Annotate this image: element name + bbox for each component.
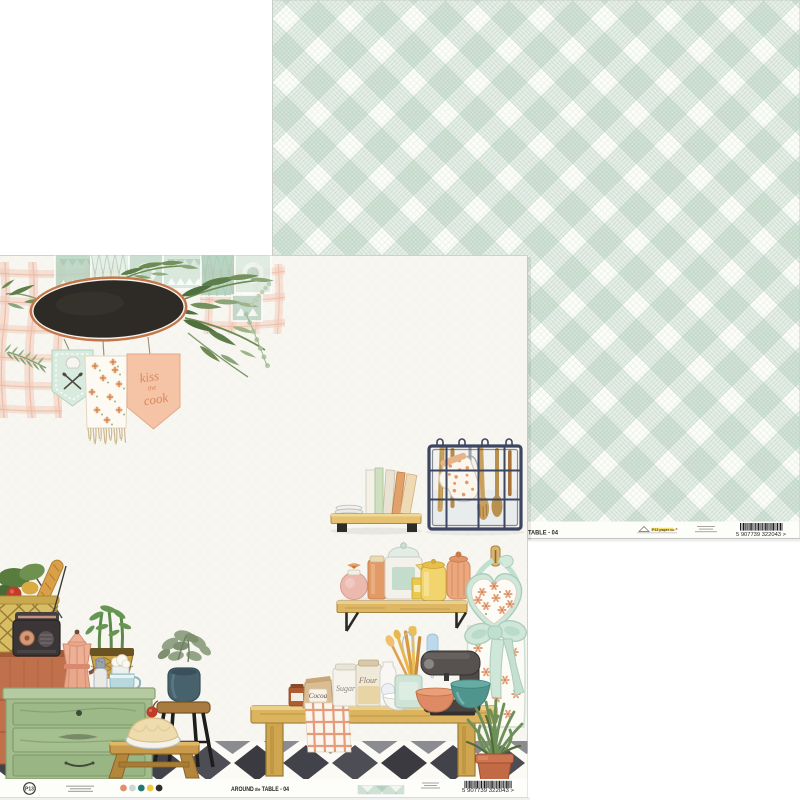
svg-text:5 907739 322043 >: 5 907739 322043 >: [736, 532, 786, 538]
svg-text:TABLE - 04: TABLE - 04: [528, 530, 558, 537]
svg-text:AROUND the TABLE - 04: AROUND the TABLE - 04: [231, 786, 289, 793]
svg-text:Flour: Flour: [358, 676, 378, 685]
svg-text:P13: P13: [25, 787, 34, 793]
svg-text:5 907739 322043 >: 5 907739 322043 >: [462, 788, 514, 794]
svg-text:P13 paper co.: P13 paper co.: [652, 528, 675, 532]
svg-text:Sugar: Sugar: [336, 684, 356, 693]
svg-text:Cocoa: Cocoa: [309, 692, 328, 700]
svg-text:kiss: kiss: [138, 368, 160, 386]
